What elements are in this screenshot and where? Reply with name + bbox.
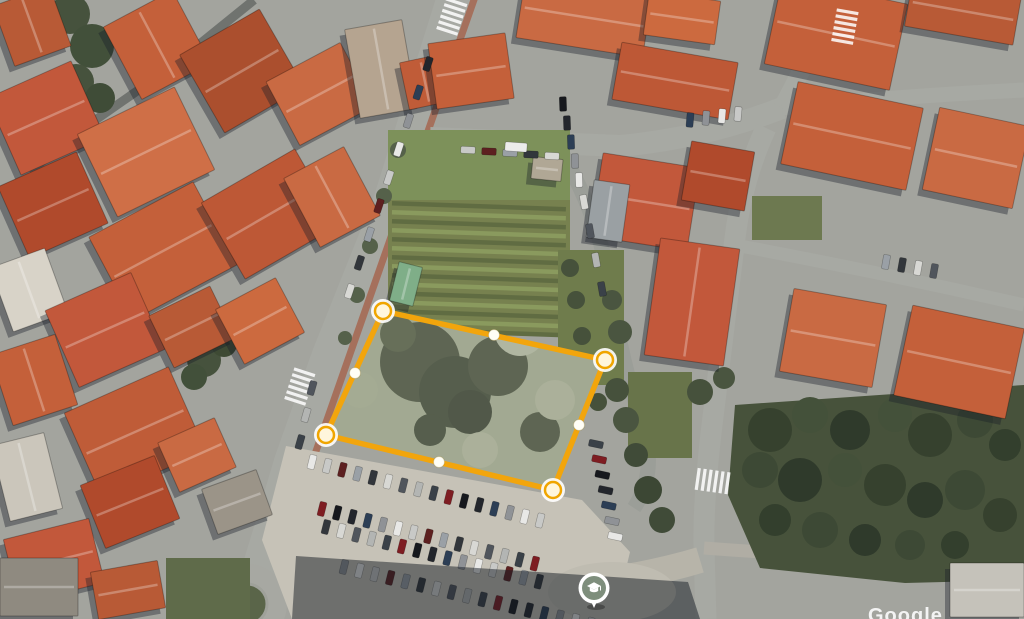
tree bbox=[945, 470, 985, 510]
polygon-vertex-handle[interactable] bbox=[375, 303, 391, 319]
satellite-map-view[interactable]: Google bbox=[0, 0, 1024, 619]
tree bbox=[864, 464, 906, 506]
tree bbox=[338, 331, 352, 345]
parked-car bbox=[563, 116, 571, 131]
pin-shadow bbox=[587, 604, 605, 610]
parked-car bbox=[575, 173, 583, 188]
polygon-vertex-handle[interactable] bbox=[545, 482, 561, 498]
tree bbox=[605, 378, 629, 402]
parked-car bbox=[461, 146, 476, 154]
tree bbox=[742, 452, 778, 488]
satellite-imagery[interactable]: Google bbox=[0, 0, 1024, 619]
parked-car bbox=[702, 110, 710, 125]
polygon-vertex-handle[interactable] bbox=[597, 352, 613, 368]
parked-car bbox=[734, 106, 742, 121]
tree bbox=[895, 530, 925, 560]
tree bbox=[849, 524, 881, 556]
polygon-midpoint-handle[interactable] bbox=[350, 368, 361, 379]
green-area bbox=[752, 196, 822, 240]
polygon-midpoint-handle[interactable] bbox=[434, 457, 445, 468]
parked-car bbox=[718, 108, 726, 123]
tree bbox=[828, 453, 862, 487]
tree bbox=[941, 531, 969, 559]
green-area bbox=[166, 558, 250, 619]
tree bbox=[778, 458, 822, 502]
parked-car bbox=[559, 97, 567, 112]
tree bbox=[907, 482, 943, 518]
tree bbox=[983, 498, 1017, 532]
tree bbox=[634, 476, 662, 504]
tree bbox=[573, 327, 591, 345]
parked-car bbox=[545, 152, 560, 160]
tree bbox=[608, 320, 632, 344]
tree bbox=[687, 379, 713, 405]
tree bbox=[567, 291, 585, 309]
parked-car bbox=[482, 148, 497, 156]
tree bbox=[624, 443, 648, 467]
polygon-vertex-handle[interactable] bbox=[318, 427, 334, 443]
tree bbox=[792, 397, 828, 433]
tree bbox=[802, 512, 838, 548]
tree bbox=[830, 410, 870, 450]
parked-car bbox=[686, 112, 694, 127]
tree bbox=[759, 504, 791, 536]
tree bbox=[181, 364, 207, 390]
tree bbox=[989, 429, 1021, 461]
tree bbox=[561, 259, 579, 277]
google-watermark: Google bbox=[868, 605, 943, 619]
tree bbox=[748, 408, 792, 452]
tree bbox=[908, 413, 952, 457]
parked-car bbox=[567, 135, 575, 150]
polygon-midpoint-handle[interactable] bbox=[574, 420, 585, 431]
parked-van bbox=[505, 142, 528, 153]
tree bbox=[649, 507, 675, 533]
polygon-midpoint-handle[interactable] bbox=[489, 330, 500, 341]
parked-car bbox=[571, 154, 579, 169]
tree bbox=[613, 407, 639, 433]
